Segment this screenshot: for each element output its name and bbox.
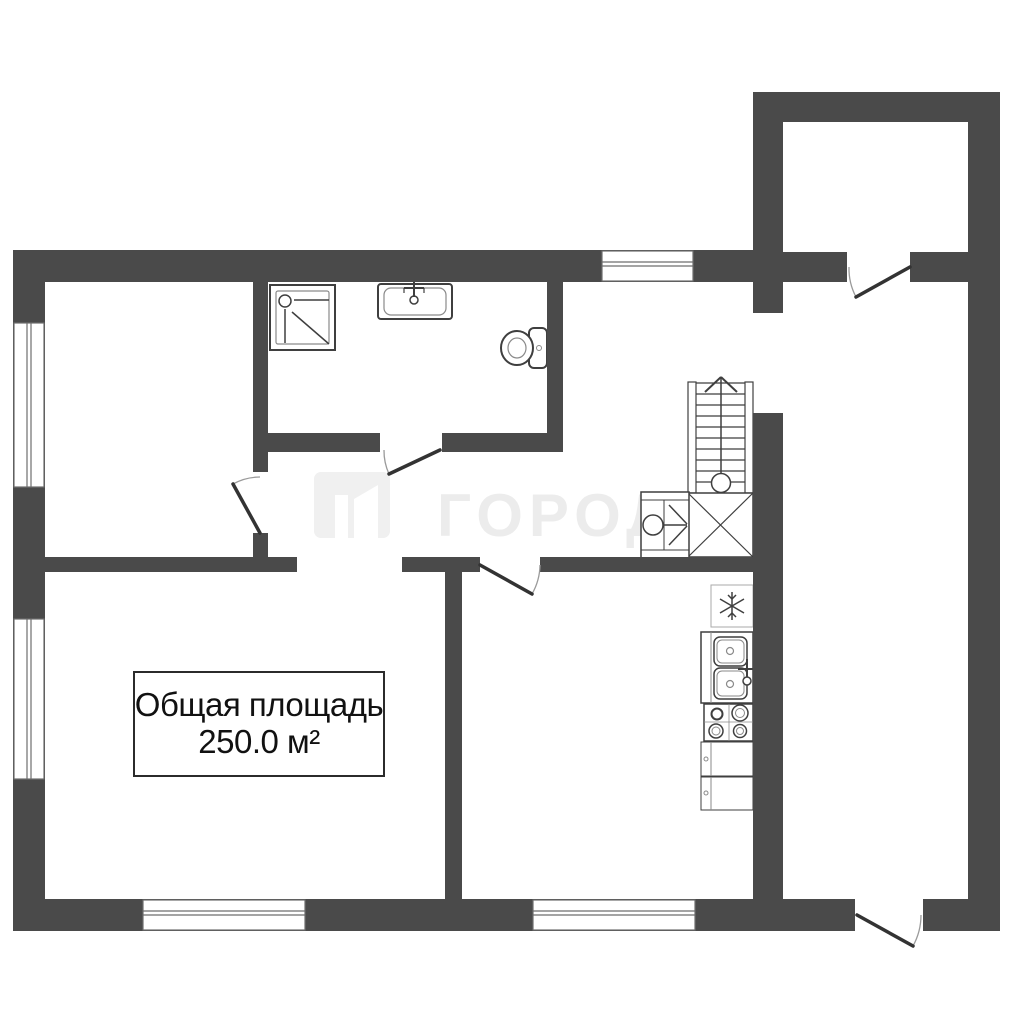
refrigerator-icon: [711, 585, 753, 627]
windows: [14, 251, 695, 930]
door-bathroom: [384, 450, 440, 474]
floor-plan: ГОРОДА: [0, 0, 1024, 1024]
window-bottom-1: [143, 900, 305, 930]
total-area-title: Общая площадь: [135, 687, 383, 724]
doors: [233, 267, 923, 946]
total-area-value: 250.0 м²: [198, 724, 319, 761]
door-entrance: [855, 899, 923, 946]
window-bottom-2: [533, 900, 695, 930]
door-room-top-left: [233, 477, 260, 533]
door-room-top-right: [849, 267, 910, 297]
window-left-2: [14, 619, 44, 779]
stove-icon: [704, 704, 753, 741]
staircase-up-icon: [688, 377, 753, 493]
washing-machine-icon: [641, 492, 689, 558]
total-area-label: Общая площадь 250.0 м²: [133, 671, 385, 777]
kitchen-cabinets-icon: [701, 742, 753, 810]
washbasin-icon: [378, 281, 452, 319]
door-kitchen: [480, 565, 540, 594]
shower-icon: [270, 285, 335, 350]
kitchen-double-sink-icon: [701, 632, 753, 703]
walls: [13, 92, 1000, 931]
toilet-icon: [501, 328, 547, 368]
window-left-1: [14, 323, 44, 487]
window-top: [602, 251, 693, 281]
understairs-landing-icon: [688, 493, 753, 557]
